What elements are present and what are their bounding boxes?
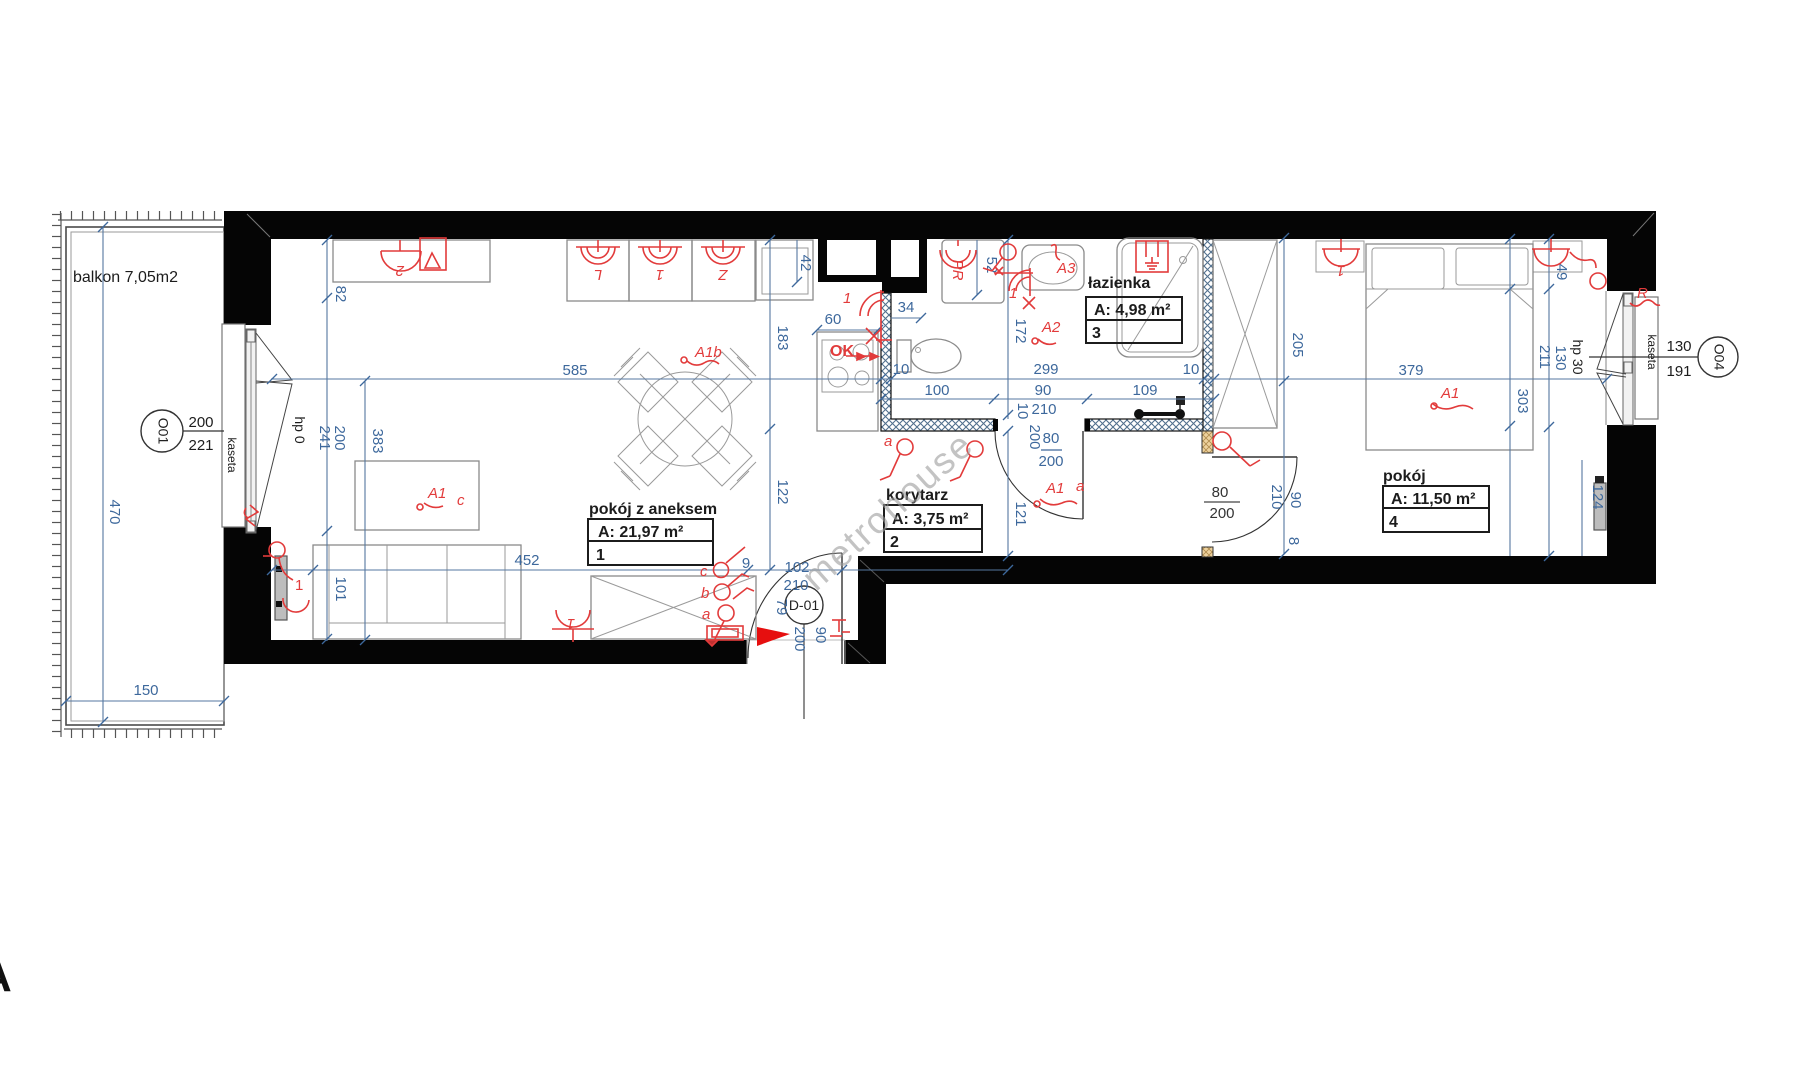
svg-text:A: A bbox=[0, 952, 12, 1001]
svg-text:150: 150 bbox=[133, 682, 158, 699]
svg-text:PR: PR bbox=[949, 260, 966, 281]
svg-text:a: a bbox=[1076, 478, 1084, 495]
svg-text:1: 1 bbox=[1337, 262, 1345, 279]
svg-text:109: 109 bbox=[1132, 382, 1157, 399]
svg-text:A1: A1 bbox=[1440, 385, 1459, 402]
svg-text:60: 60 bbox=[825, 311, 842, 328]
svg-text:c: c bbox=[457, 492, 465, 509]
svg-text:172: 172 bbox=[1012, 318, 1029, 343]
svg-text:10: 10 bbox=[1014, 403, 1031, 420]
svg-text:A1b: A1b bbox=[694, 344, 722, 361]
svg-text:A: 4,98 m²: A: 4,98 m² bbox=[1094, 302, 1170, 319]
svg-text:kaseta: kaseta bbox=[225, 437, 239, 473]
svg-text:3: 3 bbox=[1092, 325, 1101, 342]
svg-text:pokój z aneksem: pokój z aneksem bbox=[589, 501, 717, 518]
svg-text:90: 90 bbox=[812, 627, 829, 644]
svg-text:1: 1 bbox=[596, 547, 605, 564]
svg-text:221: 221 bbox=[188, 437, 213, 454]
svg-text:A1: A1 bbox=[1045, 480, 1064, 497]
svg-text:130: 130 bbox=[1552, 345, 1569, 370]
svg-text:2: 2 bbox=[395, 262, 405, 279]
svg-text:379: 379 bbox=[1398, 362, 1423, 379]
svg-text:A1: A1 bbox=[427, 485, 446, 502]
svg-text:A3: A3 bbox=[1056, 260, 1076, 277]
svg-text:balkon 7,05m2: balkon 7,05m2 bbox=[73, 269, 178, 286]
svg-text:90: 90 bbox=[1287, 492, 1304, 509]
svg-text:10: 10 bbox=[1183, 361, 1200, 378]
svg-text:130: 130 bbox=[1666, 338, 1691, 355]
svg-text:4: 4 bbox=[1389, 514, 1398, 531]
svg-text:D-01: D-01 bbox=[789, 597, 820, 613]
svg-text:O04: O04 bbox=[1711, 344, 1727, 371]
svg-text:200: 200 bbox=[1209, 505, 1234, 522]
svg-text:303: 303 bbox=[1514, 388, 1531, 413]
svg-text:585: 585 bbox=[562, 362, 587, 379]
svg-text:b: b bbox=[701, 585, 709, 602]
svg-text:9: 9 bbox=[742, 555, 750, 572]
svg-text:Z: Z bbox=[718, 266, 729, 283]
svg-text:241: 241 bbox=[316, 425, 333, 450]
svg-text:200: 200 bbox=[1038, 453, 1063, 470]
svg-text:90: 90 bbox=[1035, 382, 1052, 399]
svg-text:a: a bbox=[702, 606, 710, 623]
svg-text:pokój: pokój bbox=[1383, 468, 1426, 485]
svg-text:A: 21,97 m²: A: 21,97 m² bbox=[598, 524, 683, 541]
svg-text:205: 205 bbox=[1289, 332, 1306, 357]
svg-text:A2: A2 bbox=[1041, 319, 1061, 336]
svg-text:34: 34 bbox=[898, 299, 915, 316]
svg-text:470: 470 bbox=[106, 499, 123, 524]
svg-text:80: 80 bbox=[1043, 430, 1060, 447]
svg-text:80: 80 bbox=[1212, 484, 1229, 501]
svg-text:42: 42 bbox=[797, 255, 814, 272]
svg-text:122: 122 bbox=[774, 479, 791, 504]
svg-text:124: 124 bbox=[1589, 484, 1606, 509]
svg-text:210: 210 bbox=[1268, 484, 1285, 509]
svg-text:191: 191 bbox=[1666, 363, 1691, 380]
svg-text:210: 210 bbox=[1031, 401, 1056, 418]
svg-text:1: 1 bbox=[295, 577, 303, 594]
svg-text:1: 1 bbox=[656, 266, 664, 283]
svg-text:121: 121 bbox=[1012, 501, 1029, 526]
svg-text:100: 100 bbox=[924, 382, 949, 399]
svg-text:383: 383 bbox=[369, 428, 386, 453]
svg-text:10: 10 bbox=[893, 361, 910, 378]
svg-text:211: 211 bbox=[1536, 345, 1553, 369]
svg-text:79: 79 bbox=[773, 599, 790, 616]
svg-text:O01: O01 bbox=[155, 418, 171, 445]
svg-text:299: 299 bbox=[1033, 361, 1058, 378]
svg-text:A: 11,50 m²: A: 11,50 m² bbox=[1391, 491, 1475, 508]
svg-text:hp 0: hp 0 bbox=[292, 416, 308, 443]
svg-text:hp 30: hp 30 bbox=[1570, 339, 1586, 374]
svg-text:200: 200 bbox=[188, 414, 213, 431]
svg-text:200: 200 bbox=[1026, 424, 1043, 449]
svg-text:1: 1 bbox=[843, 290, 851, 307]
svg-text:183: 183 bbox=[774, 325, 791, 350]
svg-text:82: 82 bbox=[332, 286, 349, 303]
svg-text:452: 452 bbox=[514, 552, 539, 569]
svg-text:2: 2 bbox=[890, 534, 899, 551]
svg-text:a: a bbox=[884, 433, 892, 450]
svg-text:101: 101 bbox=[332, 576, 349, 601]
svg-text:c: c bbox=[700, 563, 708, 580]
svg-text:1: 1 bbox=[567, 615, 575, 632]
svg-text:200: 200 bbox=[331, 425, 348, 450]
svg-text:L: L bbox=[594, 266, 602, 283]
svg-text:200: 200 bbox=[791, 626, 808, 651]
svg-text:8: 8 bbox=[1285, 537, 1302, 545]
svg-text:łazienka: łazienka bbox=[1088, 275, 1150, 292]
svg-text:OK: OK bbox=[830, 343, 854, 360]
svg-text:kaseta: kaseta bbox=[1645, 334, 1659, 370]
